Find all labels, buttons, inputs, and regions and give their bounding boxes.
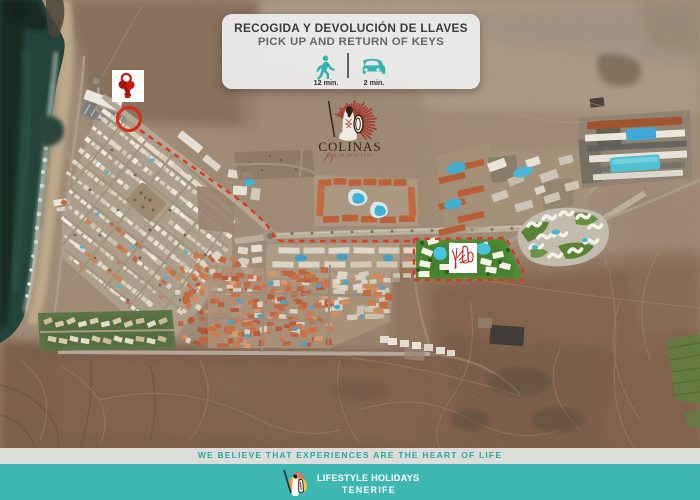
svg-text:COLINAS: COLINAS (318, 139, 381, 154)
svg-text:DE LOS MENCEYES: DE LOS MENCEYES (327, 154, 374, 158)
